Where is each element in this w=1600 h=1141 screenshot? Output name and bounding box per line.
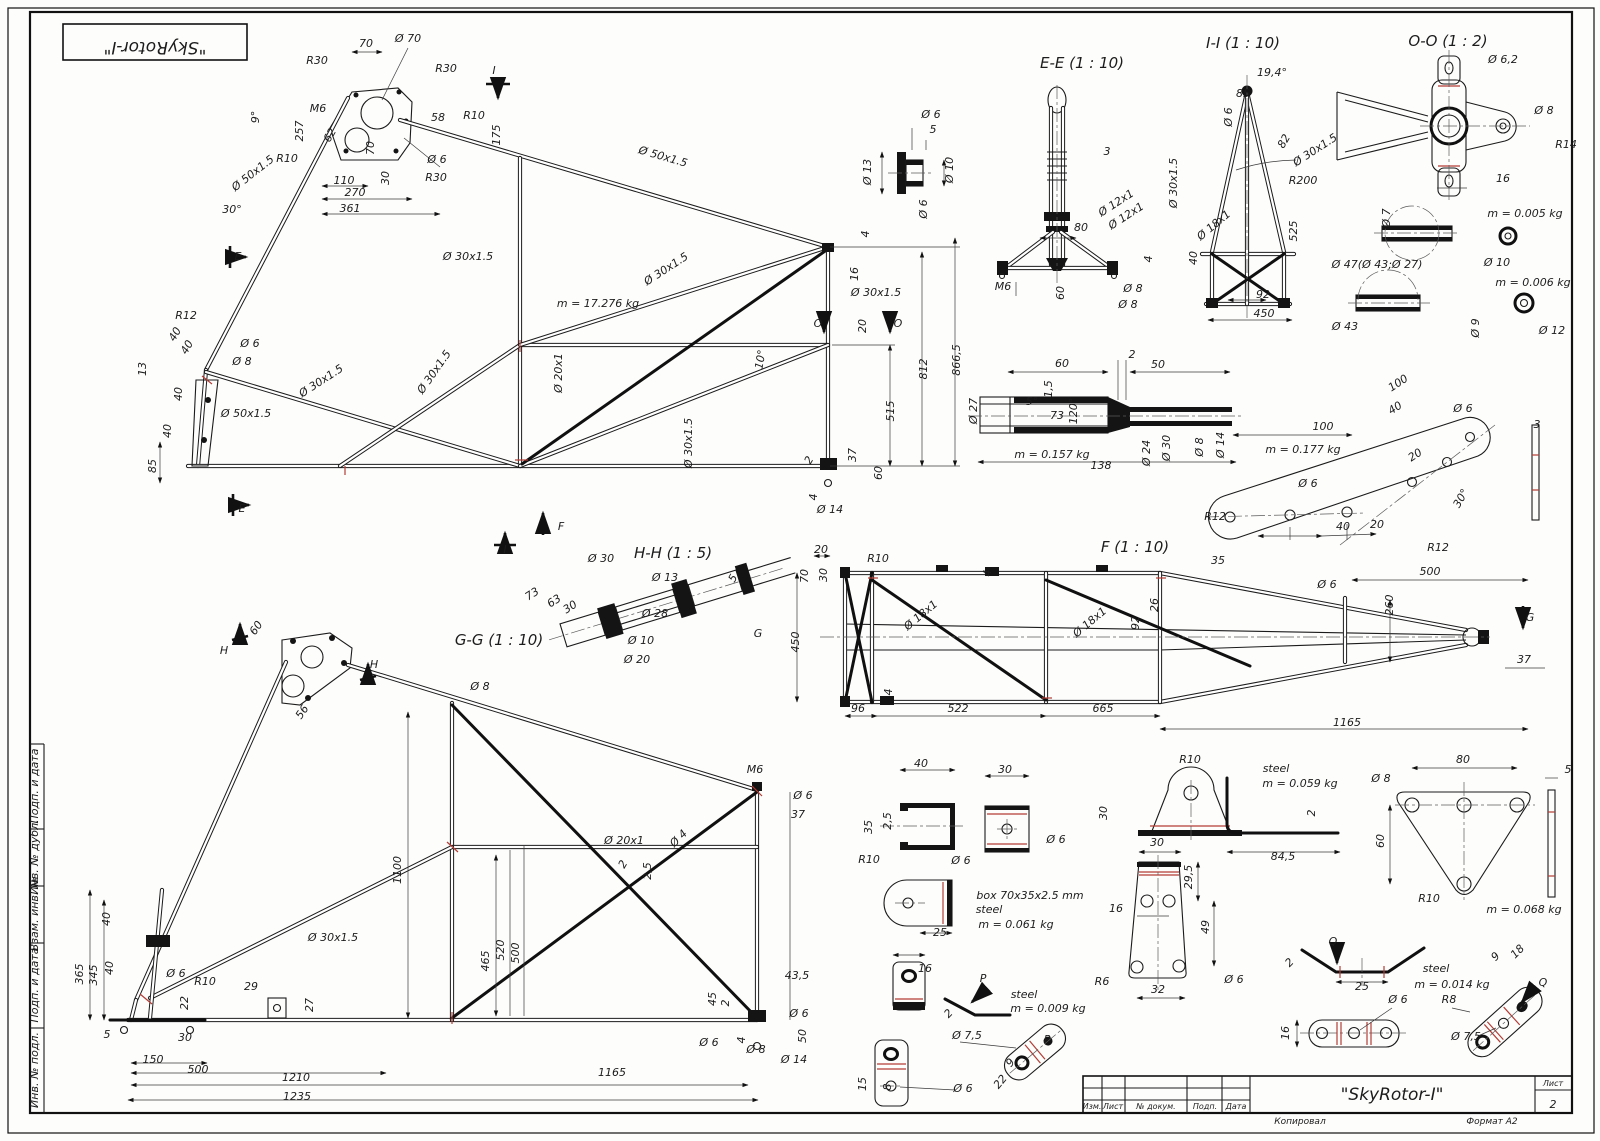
dim-label: 96 xyxy=(851,702,865,715)
dim-label: 100 xyxy=(1313,420,1334,433)
view-main-side-lower xyxy=(90,624,790,1100)
dim-label: Ø 6 xyxy=(792,789,812,802)
section-h-h xyxy=(544,548,798,657)
dim-label: Ø 10 xyxy=(627,634,654,647)
section-letter: O xyxy=(814,317,823,330)
dim-label: 270 xyxy=(345,186,366,199)
dim-label: 1165 xyxy=(598,1066,626,1079)
dim-label: 5 xyxy=(930,123,937,136)
dim-label: 4 xyxy=(859,231,872,238)
dim-label: Ø 8 xyxy=(1117,298,1137,311)
dim-label: 30 xyxy=(1097,806,1110,820)
dim-label: 5 xyxy=(104,1028,111,1041)
dim-label: 60 xyxy=(1374,834,1387,848)
dim-label: Ø 20x1 xyxy=(603,834,644,847)
dim-label: 9 xyxy=(1488,949,1502,963)
dim-label: 361 xyxy=(340,202,361,215)
detail-bushing xyxy=(882,128,944,194)
dim-label: Ø 50x1.5 xyxy=(636,143,689,170)
dim-label: 40 xyxy=(178,338,196,357)
dim-label: 73 xyxy=(523,585,542,604)
drawing-title: "SkyRotor-I" xyxy=(1341,1085,1444,1105)
dim-label: R30 xyxy=(425,171,447,184)
dim-label: 73 xyxy=(1050,409,1064,422)
tube-core xyxy=(1247,92,1284,252)
dim-label: m = 0.177 kg xyxy=(1265,443,1340,456)
footer-format: Формат А2 xyxy=(1466,1117,1518,1127)
dim-label: 40 xyxy=(1386,399,1405,418)
dim-label: m = 0.061 kg xyxy=(978,918,1053,931)
tube-core xyxy=(340,345,520,466)
section-letter: P xyxy=(1044,1033,1051,1046)
dim-label: 138 xyxy=(1091,459,1112,472)
dim-label: Подп. и дата xyxy=(28,748,41,823)
dim-label: 500 xyxy=(509,943,522,964)
tube-core xyxy=(1008,232,1053,266)
dim-label: steel xyxy=(1423,962,1450,975)
dim-label: Ø 30x1.5 xyxy=(442,250,493,263)
dim-label: 5° xyxy=(1026,395,1039,408)
dim-label: Ø 70 xyxy=(394,32,421,45)
dim-label: 1,5 xyxy=(1042,380,1055,398)
detail-triangle-plate xyxy=(1390,768,1558,900)
dim-label: 70 xyxy=(798,569,811,583)
dim-label: 27 xyxy=(303,998,316,1012)
dim-label: 29 xyxy=(244,980,258,993)
dim-label: 30 xyxy=(561,598,580,617)
dim-label: 30 xyxy=(379,171,392,185)
dim-label: Ø 8 xyxy=(469,680,489,693)
dim-label: Ø 28 xyxy=(641,607,668,620)
dim-label: 2 xyxy=(719,1000,732,1007)
dim-label: 500 xyxy=(1420,565,1441,578)
dim-label: Ø 18x1 xyxy=(1070,605,1110,641)
title-section-ii: I-I (1 : 10) xyxy=(1206,34,1280,52)
dim-label: 45 xyxy=(706,992,719,1006)
dim-label: R10 xyxy=(194,975,216,988)
dim-label: Ø 47(Ø 43;Ø 27) xyxy=(1331,258,1423,271)
section-letter: P xyxy=(980,972,987,985)
dim-label: 120° xyxy=(1067,398,1080,425)
dim-label: 92 xyxy=(1256,288,1270,301)
dim-label: Ø 30x1.5 xyxy=(307,931,358,944)
dim-label: 2,5 xyxy=(641,862,654,880)
dim-label: 35 xyxy=(862,820,875,834)
dim-label: m = 0.014 kg xyxy=(1414,978,1489,991)
dim-label: 40 xyxy=(172,387,185,401)
dim-label: Ø 6 xyxy=(1223,973,1243,986)
dim-label: Ø 6 xyxy=(952,1082,972,1095)
dim-label: Ø 30 xyxy=(587,552,614,565)
dim-label: Ø 14 xyxy=(1214,432,1227,459)
dim-label: 3 xyxy=(1534,418,1541,431)
dim-label: 20 xyxy=(814,543,828,556)
section-i-i xyxy=(1202,75,1296,320)
dim-label: R12 xyxy=(1427,541,1449,554)
dim-label: Ø 6 xyxy=(1452,402,1472,415)
dim-label: Ø 30x1.5 xyxy=(414,348,454,397)
dim-label: Ø 14 xyxy=(816,503,843,516)
dim-label: 1165 xyxy=(1333,716,1361,729)
title-section-oo: O-O (1 : 2) xyxy=(1408,32,1487,50)
dim-label: 866,5 xyxy=(950,344,963,376)
dim-label: 60 xyxy=(872,466,885,480)
dim-label: 16 xyxy=(918,962,932,975)
dim-label: 10° xyxy=(752,349,768,370)
dim-label: 812 xyxy=(917,359,930,380)
dim-label: m = 0.006 kg xyxy=(1495,276,1570,289)
dim-label: Ø 8 xyxy=(1370,772,1390,785)
dim-label: 25 xyxy=(1355,980,1369,993)
dim-label: 2,5 xyxy=(881,812,894,830)
dim-label: 4 xyxy=(981,570,994,577)
dim-label: Ø 6,2 xyxy=(1487,53,1518,66)
dim-label: Ø 6 xyxy=(1316,578,1336,591)
dim-label: 150 xyxy=(143,1053,164,1066)
dim-label: 450 xyxy=(1254,307,1275,320)
dim-label: Ø 6 xyxy=(698,1036,718,1049)
dim-label: 1235 xyxy=(283,1090,311,1103)
dim-label: 32 xyxy=(1151,983,1165,996)
dim-label: Ø 30x1.5 xyxy=(682,418,695,469)
dim-label: 15 xyxy=(856,1077,869,1091)
section-letter: E xyxy=(235,250,242,263)
dim-label: 257 xyxy=(293,121,306,142)
drawing-sheet: "SkyRotor-I" xyxy=(0,0,1600,1141)
tb-col-sign: Подп. xyxy=(1193,1102,1217,1111)
tb-sheet-number: 2 xyxy=(1550,1098,1557,1111)
section-letter: H xyxy=(370,658,378,671)
dim-label: Ø 9 xyxy=(1469,318,1482,338)
dim-label: Ø 30x1.5 xyxy=(296,362,346,401)
dim-label: Ø 30x1.5 xyxy=(850,286,901,299)
dim-label: 18 xyxy=(1508,942,1527,961)
dim-label: Ø 27 xyxy=(967,398,980,425)
dim-label: 30° xyxy=(1450,487,1471,510)
dim-label: 4 xyxy=(807,494,820,501)
dim-label: 20 xyxy=(1370,518,1384,531)
dim-label: m = 17.276 kg xyxy=(557,297,639,310)
dim-label: 22 xyxy=(178,996,191,1010)
tube-core xyxy=(198,370,206,466)
dim-label: 40 xyxy=(1187,251,1200,265)
dim-label: 30 xyxy=(1150,836,1164,849)
dim-label: 80 xyxy=(1456,753,1470,766)
dim-label: Ø 6 xyxy=(1222,107,1235,127)
dim-label: 16 xyxy=(1109,902,1123,915)
dim-label: Ø 14 xyxy=(780,1053,807,1066)
tube-core xyxy=(520,345,828,466)
detail-u-bracket xyxy=(880,770,1029,933)
dim-label: R30 xyxy=(306,54,328,67)
dim-label: 29,5 xyxy=(1182,865,1195,890)
dim-label: 40 xyxy=(161,424,174,438)
dim-label: 40 xyxy=(166,325,184,344)
dim-label: 30 xyxy=(998,763,1012,776)
dim-label: 85 xyxy=(146,459,159,473)
dim-label: 365 xyxy=(73,964,86,985)
tb-col-izm: Изм. xyxy=(1083,1102,1102,1111)
dim-label: Ø 24 xyxy=(1140,440,1153,467)
dim-label: R8 xyxy=(1442,993,1457,1006)
dim-label: 85 xyxy=(1236,87,1250,100)
dim-label: 2 xyxy=(1129,348,1136,361)
dim-label: Ø 6 xyxy=(950,854,970,867)
dim-label: R12 xyxy=(1204,510,1226,523)
dim-label: 58 xyxy=(431,111,445,124)
dim-label: Ø 6 xyxy=(917,199,930,219)
section-letter: O xyxy=(894,317,903,330)
dim-label: Ø 6 xyxy=(426,153,446,166)
section-letter: E xyxy=(239,502,246,515)
tube-core xyxy=(400,120,828,247)
dim-label: 500 xyxy=(188,1063,209,1076)
dim-label: m = 0.157 kg xyxy=(1014,448,1089,461)
dim-label: 37 xyxy=(1517,653,1531,666)
dim-label: 20 xyxy=(1406,446,1425,465)
dim-label: Ø 6 xyxy=(1045,833,1065,846)
stamp-box: "SkyRotor-I" xyxy=(63,24,247,60)
dim-label: Инв. № подл. xyxy=(28,1032,41,1108)
dim-label: Ø 13 xyxy=(651,571,678,584)
dim-label: 16 xyxy=(1496,172,1510,185)
dim-label: 26 xyxy=(1148,598,1161,612)
dim-label: 260 xyxy=(1383,595,1396,616)
dim-label: R10 xyxy=(463,109,485,122)
dim-label: 56 xyxy=(293,703,312,722)
dim-label: Ø 50x1.5 xyxy=(220,407,271,420)
dim-label: m = 0.005 kg xyxy=(1487,207,1562,220)
dim-label: 1100 xyxy=(391,856,404,884)
dim-label: 80 xyxy=(1074,221,1088,234)
dim-label: 1210 xyxy=(282,1071,310,1084)
dim-label: R10 xyxy=(867,552,889,565)
section-letter: Q xyxy=(1329,935,1338,948)
dim-label: 19,4° xyxy=(1257,66,1287,79)
dim-label: Ø 13 xyxy=(861,159,874,186)
section-letter: I xyxy=(503,543,506,556)
dim-label: Ø 30x1.5 xyxy=(1290,131,1340,170)
dim-label: 9 xyxy=(1003,1056,1017,1070)
section-letter: G xyxy=(1526,611,1535,624)
dim-label: 50 xyxy=(796,1029,809,1043)
title-section-ee: E-E (1 : 10) xyxy=(1040,54,1124,72)
dim-label: M6 xyxy=(995,280,1012,293)
dim-label: 40 xyxy=(914,757,928,770)
tube-core xyxy=(348,665,757,790)
dim-label: Ø 8 xyxy=(1122,282,1142,295)
section-letter: Q xyxy=(1539,976,1548,989)
title-block: Изм. Лист № докум. Подп. Дата "SkyRotor-… xyxy=(1083,1076,1572,1127)
tube-core xyxy=(1061,232,1108,266)
dim-label: 22 xyxy=(991,1072,1010,1091)
dim-label: M6 xyxy=(747,763,764,776)
dim-label: Ø 50x1.5 xyxy=(228,153,276,195)
detail-links xyxy=(1297,981,1548,1062)
dim-label: 60 xyxy=(1055,357,1069,370)
dim-label: 4 xyxy=(882,689,895,696)
dim-label: 2 xyxy=(1305,810,1318,817)
section-letter: G xyxy=(754,627,763,640)
dim-label: R10 xyxy=(1179,753,1201,766)
dim-label: Ø 6 xyxy=(1387,993,1407,1006)
dim-label: R10 xyxy=(276,152,298,165)
dim-label: 60 xyxy=(1054,286,1067,300)
dim-label: m = 0.068 kg xyxy=(1486,903,1561,916)
dim-label: Ø 7 xyxy=(1380,208,1393,228)
dim-label: 84,5 xyxy=(1271,850,1296,863)
dim-label: Ø 7,5 xyxy=(951,1029,982,1042)
dim-label: Ø 12 xyxy=(1538,324,1565,337)
dim-label: 50 xyxy=(1151,358,1165,371)
dim-label: 2 xyxy=(941,1006,955,1020)
dim-label: 522 xyxy=(948,702,969,715)
dim-label: 515 xyxy=(884,401,897,422)
dim-label: 40 xyxy=(1336,520,1350,533)
tb-col-list: Лист xyxy=(1102,1102,1124,1111)
dim-label: 100 xyxy=(1386,372,1411,394)
dim-label: Ø 20x1 xyxy=(552,353,565,394)
dim-label: 16 xyxy=(1279,1026,1292,1040)
dim-label: 49 xyxy=(1199,920,1212,934)
dim-label: Ø 6 xyxy=(920,108,940,121)
dim-label: 2 xyxy=(1282,955,1296,969)
dim-label: Ø 30 xyxy=(1160,435,1173,462)
dim-label: 525 xyxy=(1287,221,1300,242)
dim-label: R14 xyxy=(1555,138,1577,151)
section-letter: F xyxy=(558,520,565,533)
dim-label: Ø 8 xyxy=(1193,437,1206,457)
footer-copied: Копировал xyxy=(1274,1117,1326,1127)
dim-label: Ø 8 xyxy=(745,1043,765,1056)
dim-label: 37 xyxy=(846,448,859,462)
dim-label: 2 xyxy=(616,858,631,871)
dim-label: m = 0.059 kg xyxy=(1262,777,1337,790)
dim-label: 520 xyxy=(494,940,507,961)
tube-core xyxy=(1160,573,1466,630)
dim-label: 70 xyxy=(359,37,373,50)
tb-col-date: Дата xyxy=(1225,1102,1247,1111)
dim-label: R10 xyxy=(1418,892,1440,905)
tube-core xyxy=(1160,645,1466,702)
section-letter: I xyxy=(492,64,495,77)
dim-label: steel xyxy=(1263,762,1290,775)
dim-label: 30 xyxy=(178,1031,192,1044)
dim-label: R12 xyxy=(175,309,197,322)
dim-label: 30 xyxy=(817,568,830,582)
stamp-text: "SkyRotor-I" xyxy=(104,37,207,57)
dim-label: 8 xyxy=(881,1084,894,1091)
dim-label: 82 xyxy=(1275,132,1293,151)
dim-label: R10 xyxy=(858,853,880,866)
dim-label: 9° xyxy=(249,111,262,124)
dim-label: Ø 8 xyxy=(1533,104,1553,117)
dim-label: 5 xyxy=(1565,763,1572,776)
dim-label: Ø 6 xyxy=(165,967,185,980)
dim-label: Ø 43 xyxy=(1331,320,1358,333)
dim-label: 20 xyxy=(856,319,869,333)
dim-label: 60 xyxy=(247,619,266,638)
dim-label: 175 xyxy=(490,125,503,146)
dim-label: 3 xyxy=(1104,145,1111,158)
dim-label: m = 0.009 kg xyxy=(1010,1002,1085,1015)
dim-label: Ø 8 xyxy=(231,355,251,368)
dim-label: Подп. и дата xyxy=(28,947,41,1022)
dim-label: Ø 6 xyxy=(1297,477,1317,490)
dim-label: 450 xyxy=(789,632,802,653)
dim-label: M6 xyxy=(310,102,327,115)
title-view-f: F (1 : 10) xyxy=(1101,538,1169,556)
section-e-e xyxy=(997,85,1118,296)
dim-label: steel xyxy=(976,903,1003,916)
dim-label: 63 xyxy=(545,592,564,611)
dim-label: 30° xyxy=(222,203,242,216)
tb-col-doc: № докум. xyxy=(1135,1102,1175,1111)
dim-label: box 70x35x2.5 mm xyxy=(976,889,1083,902)
dim-label: 43,5 xyxy=(785,969,810,982)
dim-label: 4 xyxy=(1142,256,1155,263)
dim-label: Ø 20 xyxy=(623,653,650,666)
dim-label: Ø 30x1.5 xyxy=(641,250,691,289)
section-letter: H xyxy=(220,644,228,657)
tube-core xyxy=(150,890,162,1018)
dim-label: Взам. инв. № xyxy=(28,877,41,952)
dim-label: Ø 10 xyxy=(1483,256,1510,269)
tb-sheet-label: Лист xyxy=(1542,1079,1564,1088)
drawing-canvas: "SkyRotor-I" xyxy=(0,0,1600,1141)
dim-label: Ø 6 xyxy=(788,1007,808,1020)
dim-label: Ø 30x1.5 xyxy=(1167,158,1180,209)
dim-label: 345 xyxy=(87,965,100,986)
dim-label: 40 xyxy=(100,912,113,926)
dim-label: 465 xyxy=(479,951,492,972)
dim-label: 25 xyxy=(933,926,947,939)
dim-label: R200 xyxy=(1289,174,1318,187)
dim-label: Ø 6 xyxy=(239,337,259,350)
dim-label: 16 xyxy=(848,267,861,281)
dim-label: R30 xyxy=(435,62,457,75)
dim-label: R6 xyxy=(1095,975,1110,988)
annotations-layer: R3070Ø 70R30IM62579°6258R10175R101107030… xyxy=(28,32,1577,1108)
dim-label: 92 xyxy=(1129,616,1142,630)
dim-label: Ø 10 xyxy=(943,157,956,184)
dim-label: 37 xyxy=(791,808,805,821)
dim-label: 70 xyxy=(364,141,377,155)
title-section-gg: G-G (1 : 10) xyxy=(455,631,543,649)
view-f xyxy=(797,556,1545,729)
dim-label: 13 xyxy=(136,362,149,376)
dim-label: 35 xyxy=(1211,554,1225,567)
dim-label: 40 xyxy=(103,961,116,975)
title-section-hh: H-H (1 : 5) xyxy=(634,544,712,562)
dim-label: 665 xyxy=(1093,702,1114,715)
dim-label: Ø 7,5 xyxy=(1450,1030,1481,1043)
dim-label: steel xyxy=(1011,988,1038,1001)
